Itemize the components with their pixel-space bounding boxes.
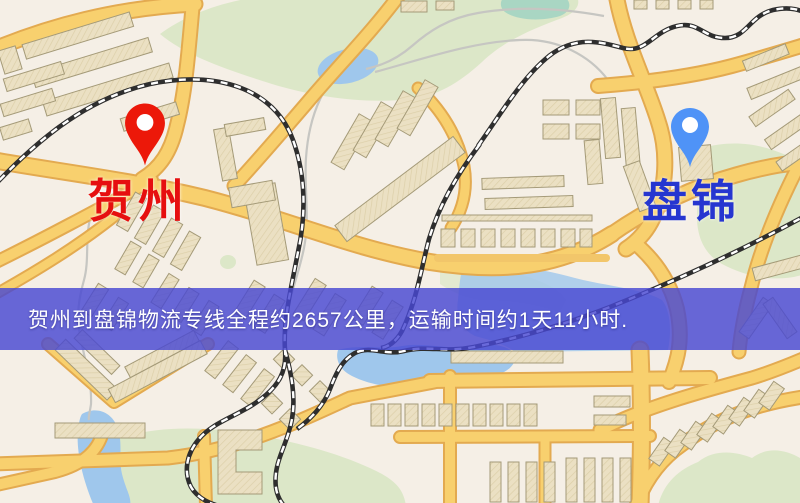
red-pin-icon bbox=[124, 102, 166, 168]
destination-pin[interactable] bbox=[669, 107, 711, 169]
route-info-banner: 贺州到盘锦物流专线全程约2657公里，运输时间约1天11小时. bbox=[0, 288, 800, 350]
blue-pin-icon bbox=[669, 107, 711, 169]
origin-city-label: 贺州 bbox=[88, 178, 188, 224]
map-canvas[interactable] bbox=[0, 0, 800, 503]
destination-city-label: 盘锦 bbox=[642, 179, 740, 224]
origin-pin[interactable] bbox=[124, 102, 166, 168]
green-spot bbox=[220, 255, 236, 269]
route-info-text: 贺州到盘锦物流专线全程约2657公里，运输时间约1天11小时. bbox=[28, 304, 628, 334]
logistics-route-map: 贺州 盘锦 贺州到盘锦物流专线全程约2657公里，运输时间约1天11小时. bbox=[0, 0, 800, 503]
